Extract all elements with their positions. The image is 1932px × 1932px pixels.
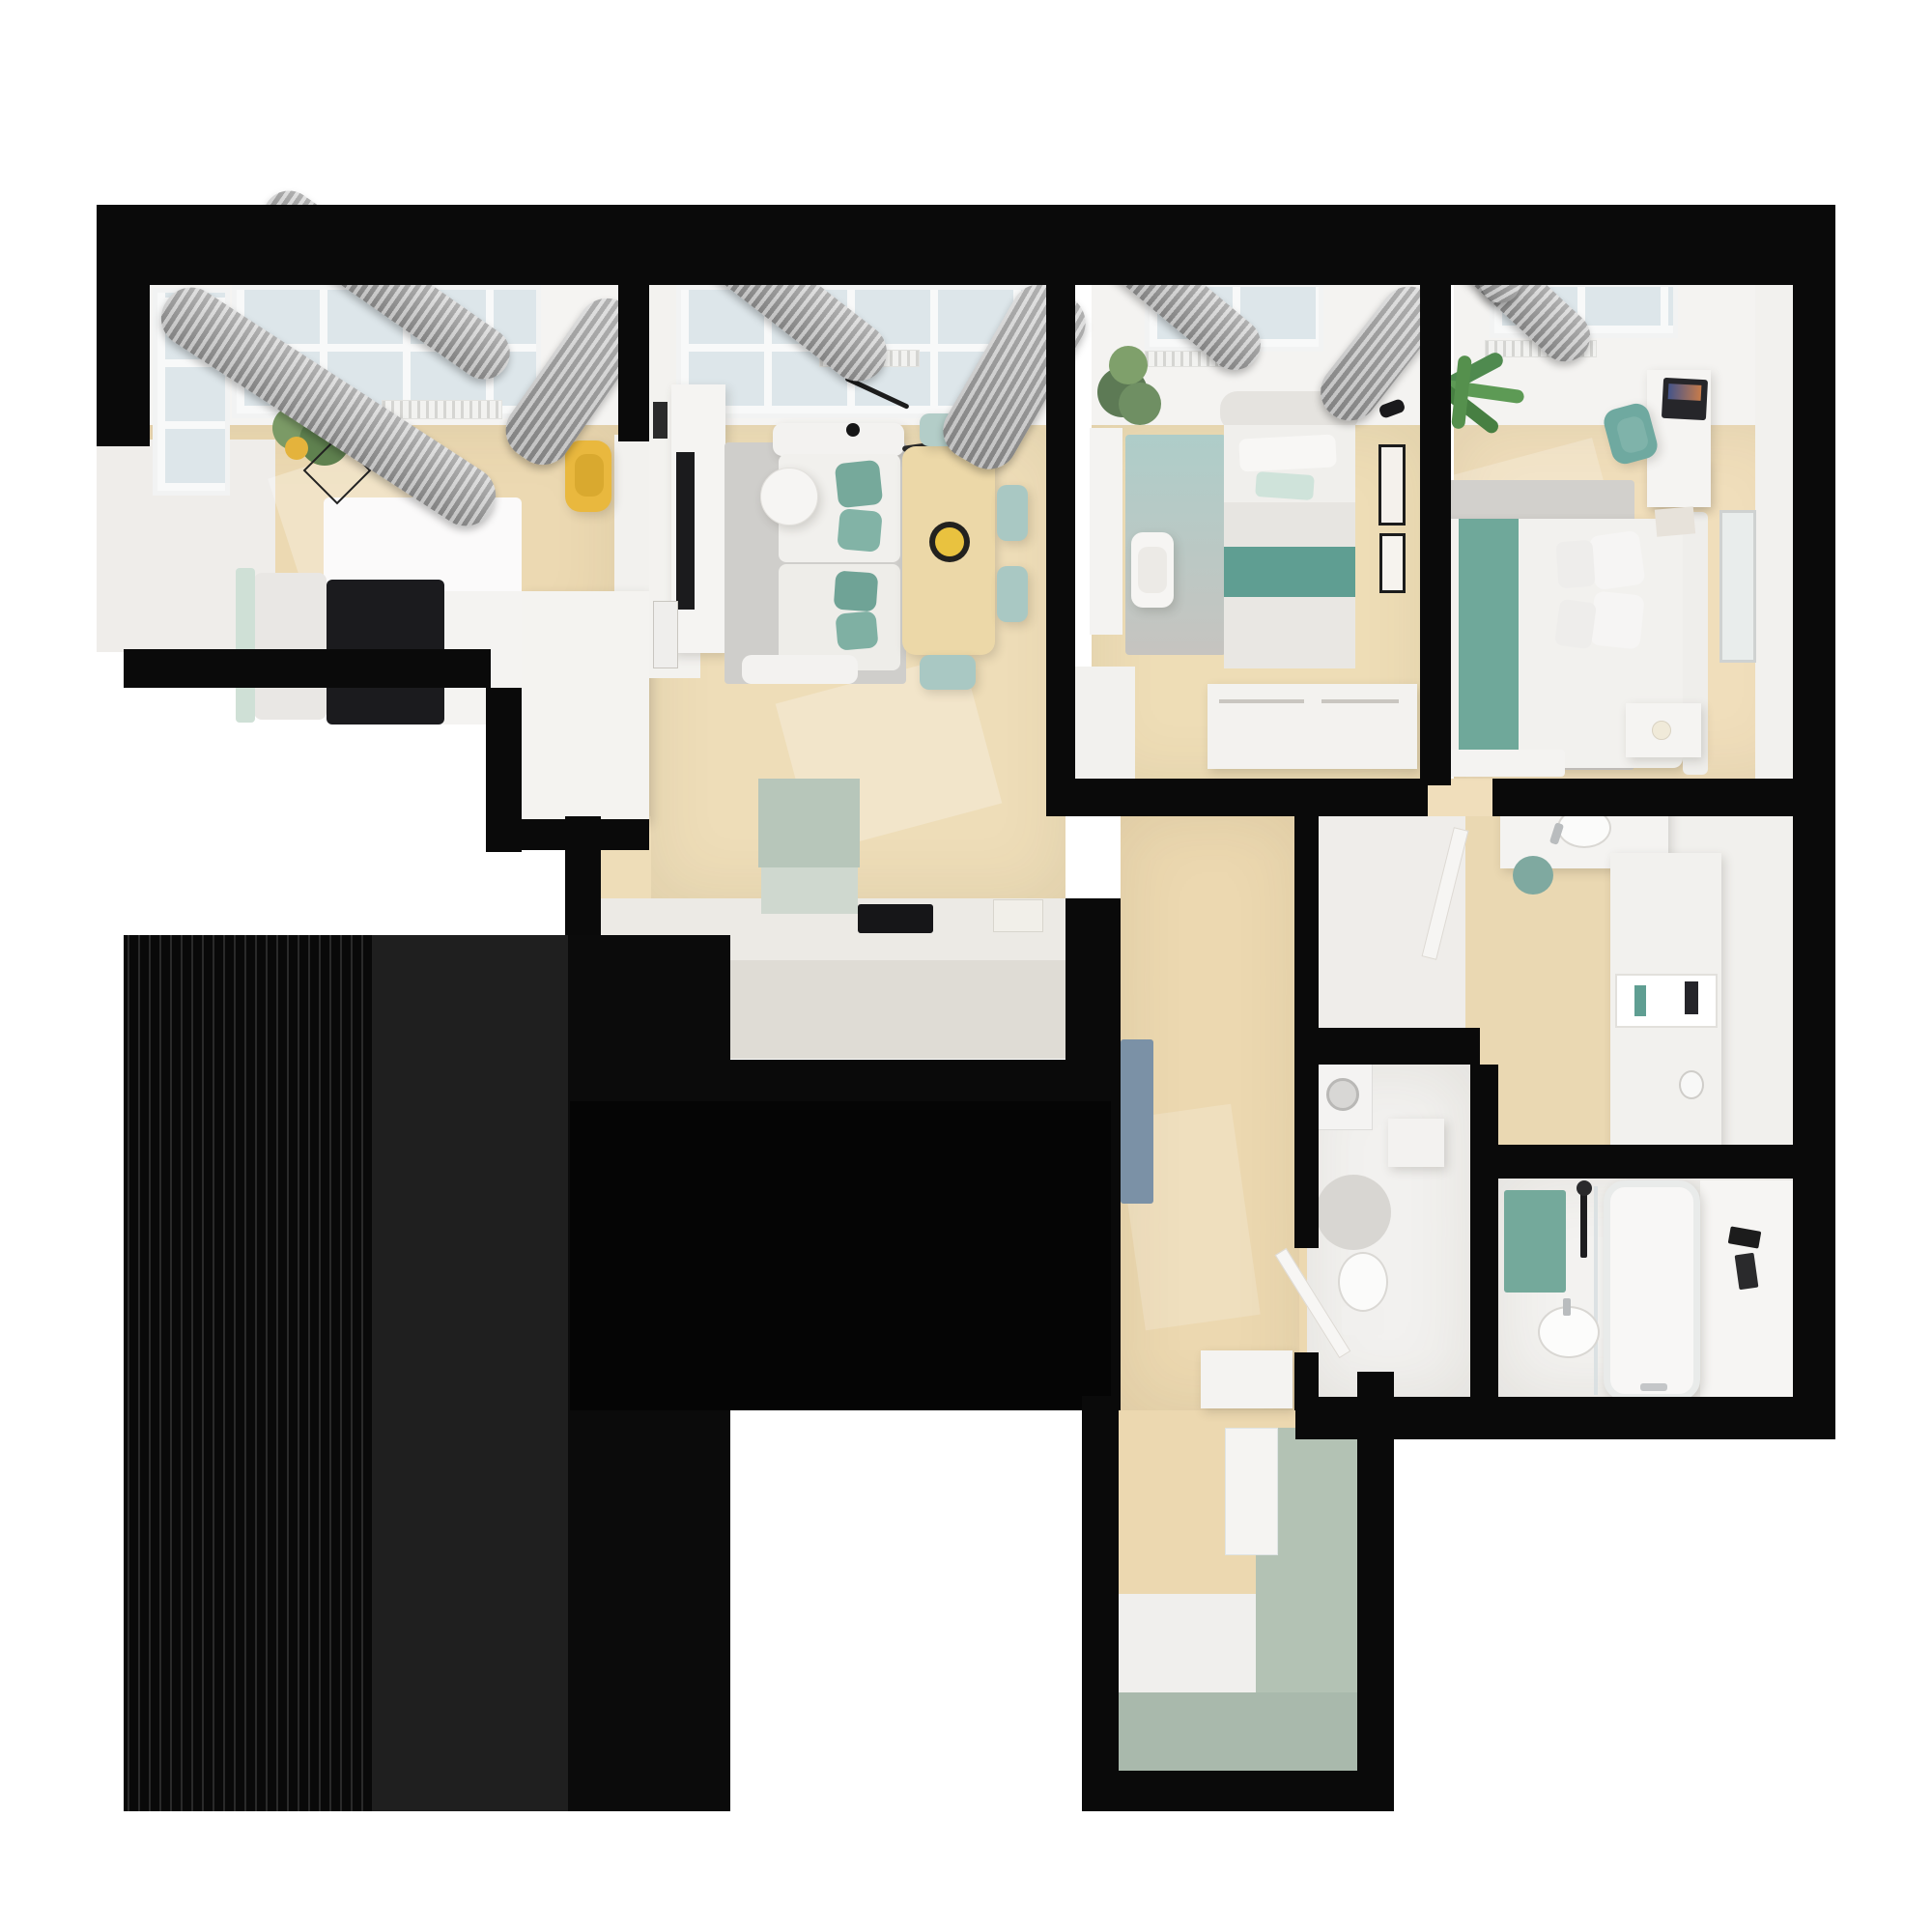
entrance-sage-bench [1119, 1692, 1357, 1771]
bath-glass-screen [1594, 1186, 1598, 1395]
kids-headboard [236, 568, 255, 723]
master-wall-picture [1719, 510, 1756, 663]
wall-master-bottom [1492, 779, 1806, 816]
wall-kids-living [618, 205, 649, 441]
wall-entrance-bottom [1082, 1771, 1394, 1811]
wall-living-bed2 [1046, 282, 1075, 816]
black-mass-striped [124, 935, 375, 1811]
living-tv [676, 452, 695, 610]
wall-bed2-bottom [1074, 779, 1428, 816]
bath-right-ledge [1700, 1180, 1793, 1401]
bed2-plant-leaf-3 [1109, 346, 1148, 384]
bath-shower-head [1577, 1180, 1592, 1196]
bed2-dresser [1207, 684, 1417, 769]
wall-right [1793, 205, 1835, 1439]
sofa-cushion-2 [837, 508, 882, 553]
sofa-cushion-1 [835, 460, 884, 509]
floor-plan-render [0, 0, 1932, 1932]
bed2-pillow [1238, 434, 1337, 471]
kids-wardrobe [522, 591, 649, 821]
bed2-teal-band [1224, 547, 1355, 601]
kids-yellow-chair-seat [575, 454, 604, 497]
bath-teal-towel [1504, 1190, 1566, 1293]
master-pillow-4 [1554, 599, 1597, 650]
bed2-desk-chair-seat [1138, 547, 1167, 593]
bed2-plant-leaf-2 [1119, 383, 1161, 425]
master-bench [1435, 750, 1565, 777]
kitchen-sage-cabinet [758, 779, 860, 867]
floor-hall-threshold [1119, 1410, 1299, 1430]
dressing-vase [1679, 1070, 1704, 1099]
master-lamp [1652, 721, 1671, 740]
master-teal-runner [1459, 519, 1519, 768]
wc-toilet-bowl [1338, 1252, 1388, 1312]
master-magazine [1655, 506, 1695, 536]
wall-bath-top [1486, 1145, 1835, 1179]
dressing-cubbies [1615, 974, 1718, 1028]
bed2-frame-2 [1379, 533, 1406, 593]
wall-wc-top [1295, 1028, 1480, 1065]
wallface-master-right [1755, 282, 1793, 779]
hallway-console [1201, 1350, 1293, 1408]
sofa-back [773, 423, 904, 456]
kids-plant-pot [285, 437, 308, 460]
kitchen-cutting-board [993, 899, 1043, 932]
wall-kids-step [486, 688, 522, 852]
living-frame-small [653, 402, 668, 439]
dining-chair-right-2 [997, 566, 1028, 622]
dressing-cubby-teal-item [1634, 985, 1646, 1016]
wallface-kids-right [614, 435, 649, 594]
wall-bed2-master [1420, 282, 1451, 785]
wall-entrance-left [1082, 1396, 1119, 1811]
fruit [935, 527, 964, 556]
coffee-table [760, 468, 818, 526]
sofa-cushion-4 [835, 611, 878, 651]
wc-washer-door [1326, 1078, 1359, 1111]
dressing-stool [1513, 856, 1553, 895]
black-mass-mid [372, 935, 570, 1811]
master-pillow-3 [1555, 540, 1595, 589]
wall-top [97, 205, 1835, 285]
wall-left [97, 205, 150, 446]
kitchen-sage-cabinet-face [761, 867, 858, 914]
kids-pillow [254, 573, 327, 720]
dining-chair-right-1 [997, 485, 1028, 541]
living-frame-leaning [653, 601, 678, 668]
wc-shelf [1388, 1119, 1444, 1167]
dressing-cubby-black-item [1685, 981, 1698, 1014]
bathtub-faucet [1640, 1383, 1667, 1391]
bed2-dresser-handle-1 [1219, 699, 1304, 703]
dining-chair-bottom [920, 655, 976, 690]
bed2-desk [1090, 428, 1122, 635]
wall-entrance-right [1357, 1372, 1394, 1811]
master-pillow-2 [1589, 590, 1645, 649]
bed2-pillow-teal [1255, 471, 1315, 500]
wc-round-rug [1316, 1175, 1391, 1250]
wall-wc-bath [1470, 1065, 1498, 1406]
master-laptop-screen [1668, 384, 1702, 401]
bathtub [1604, 1180, 1700, 1401]
hallway-door-mat [1121, 1039, 1153, 1204]
bed2-duvet-bottom [1224, 597, 1355, 668]
sofa-cushion-3 [834, 571, 879, 612]
floor-lamp-head [846, 423, 860, 437]
kitchen-cooktop [858, 904, 933, 933]
master-pillow-1 [1588, 530, 1645, 591]
black-mass-under-kitchen [570, 1101, 1111, 1410]
bed2-frame-1 [1378, 444, 1406, 526]
bed2-duvet-top [1224, 502, 1355, 551]
bath-sink-faucet [1563, 1298, 1571, 1316]
wallface-bed2-corner [1075, 667, 1135, 781]
entrance-wardrobe-drawers [1225, 1428, 1278, 1555]
sofa-chaise [742, 655, 858, 684]
wall-kids-bottom [124, 649, 491, 688]
bed2-dresser-handle-2 [1321, 699, 1399, 703]
